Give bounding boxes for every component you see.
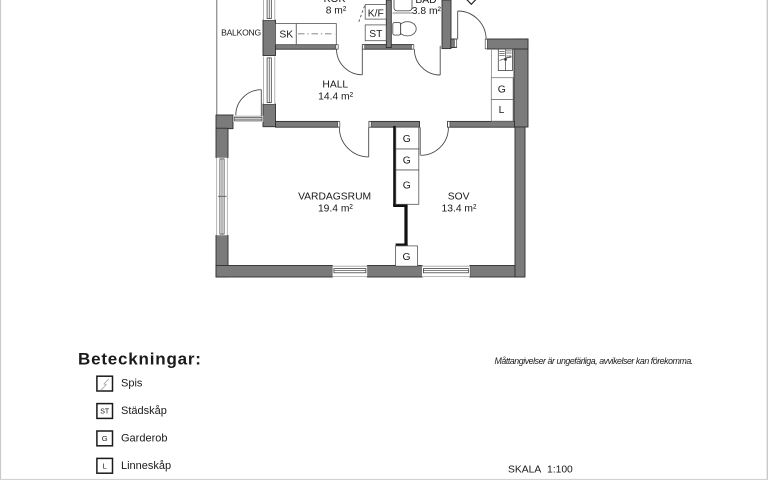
svg-text:SKALA1:100: SKALA1:100 bbox=[508, 464, 573, 475]
svg-text:19.4 m²: 19.4 m² bbox=[318, 203, 353, 214]
svg-text:SOV: SOV bbox=[448, 192, 470, 203]
svg-text:G: G bbox=[402, 252, 410, 263]
svg-text:Städskåp: Städskåp bbox=[121, 405, 167, 417]
svg-text:8 m²: 8 m² bbox=[326, 5, 347, 16]
svg-text:KÖK: KÖK bbox=[324, 0, 346, 5]
svg-text:Spis: Spis bbox=[121, 378, 143, 390]
svg-text:3.8 m²: 3.8 m² bbox=[412, 6, 442, 17]
svg-text:BALKONG: BALKONG bbox=[221, 28, 261, 38]
svg-text:G: G bbox=[498, 85, 506, 96]
svg-text:G: G bbox=[102, 434, 108, 443]
svg-text:VARDAGSRUM: VARDAGSRUM bbox=[298, 192, 371, 203]
svg-text:G: G bbox=[403, 180, 411, 191]
svg-text:K/F: K/F bbox=[368, 8, 384, 19]
svg-text:Måttangivelser är ungefärliga,: Måttangivelser är ungefärliga, avvikelse… bbox=[495, 356, 693, 366]
svg-text:L: L bbox=[499, 105, 505, 116]
svg-text:L: L bbox=[103, 462, 107, 471]
svg-text:Beteckningar:: Beteckningar: bbox=[78, 350, 202, 369]
svg-text:ST: ST bbox=[369, 29, 383, 40]
svg-text:Linneskåp: Linneskåp bbox=[121, 460, 171, 472]
svg-text:14.4 m²: 14.4 m² bbox=[318, 91, 353, 102]
svg-text:ST: ST bbox=[100, 409, 110, 416]
svg-text:G: G bbox=[403, 134, 411, 145]
svg-text:SK: SK bbox=[279, 29, 293, 40]
svg-text:HALL: HALL bbox=[322, 80, 348, 91]
svg-text:13.4 m²: 13.4 m² bbox=[442, 203, 477, 214]
svg-text:G: G bbox=[403, 155, 411, 166]
svg-text:Garderob: Garderob bbox=[121, 432, 167, 444]
